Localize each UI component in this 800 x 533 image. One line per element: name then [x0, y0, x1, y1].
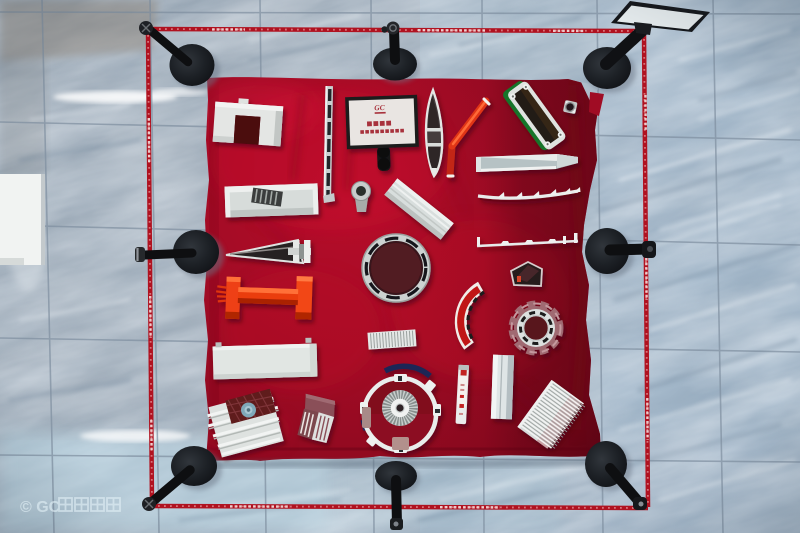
svg-text:© GC: © GC [20, 499, 61, 516]
